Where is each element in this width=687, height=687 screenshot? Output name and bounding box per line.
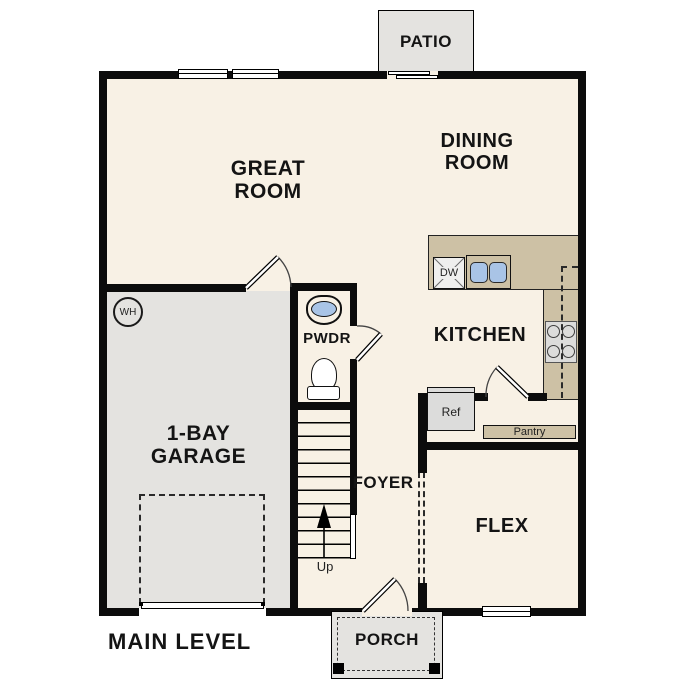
- garage-top-wall: [107, 284, 246, 292]
- porch-label: PORCH: [341, 631, 433, 649]
- garage-label: 1-BAY GARAGE: [107, 423, 290, 468]
- powder-label: PWDR: [296, 331, 358, 347]
- stairs-up-label: Up: [305, 559, 345, 574]
- kitchen-south-wall-right-stub: [528, 393, 547, 401]
- flex-label: FLEX: [450, 516, 554, 538]
- sink-basin-right: [489, 262, 507, 283]
- garage-door-track: [139, 494, 265, 604]
- patio-label: PATIO: [378, 33, 474, 51]
- powder-bottom-wall: [298, 402, 350, 410]
- pantry-shelf: Pantry: [483, 425, 576, 439]
- foyer-flex-opening: [418, 472, 420, 583]
- ref-alcove-wall: [418, 393, 427, 449]
- dishwasher-label: DW: [439, 267, 459, 279]
- front-door-opening: [362, 608, 412, 616]
- foyer-label: FOYER: [350, 474, 416, 492]
- kitchen-south-wall-left-stub: [475, 393, 488, 401]
- foyer-flex-wall-lower-stub: [418, 583, 427, 608]
- great-room-window-left: [178, 69, 228, 79]
- garage-door-panel: [141, 602, 264, 609]
- cabinet-dashed-line: [561, 266, 578, 268]
- powder-right-wall-upper: [350, 283, 357, 326]
- refrigerator-door-line: [428, 392, 474, 393]
- foyer-flex-wall-upper-stub: [418, 449, 427, 473]
- toilet-tank: [307, 386, 340, 400]
- plan-title: MAIN LEVEL: [108, 629, 251, 655]
- patio-slider-door: [396, 75, 438, 79]
- sink-basin-left: [470, 262, 488, 283]
- foyer-flex-opening: [423, 472, 425, 583]
- pantry-label: Pantry: [514, 426, 546, 438]
- water-heater: WH: [113, 297, 143, 327]
- dishwasher: DW: [433, 257, 465, 289]
- kitchen-label: KITCHEN: [424, 325, 536, 347]
- dining-room-label: DINING ROOM: [417, 131, 537, 174]
- great-room-window-right: [232, 69, 279, 79]
- flex-top-wall: [418, 442, 578, 450]
- refrigerator-label: Ref: [442, 405, 461, 419]
- stair-railing: [350, 514, 356, 559]
- garage-door-opening: [139, 608, 266, 616]
- stove-burner: [547, 345, 560, 358]
- stove-burner: [547, 325, 560, 338]
- floor-plan: PATIO WH 1-BAY GARAGE PWDR Up FOYER DW: [0, 0, 687, 687]
- powder-top-wall: [290, 283, 357, 291]
- porch-post-left: [333, 663, 344, 674]
- stove-burner: [562, 325, 575, 338]
- water-heater-label: WH: [120, 307, 137, 318]
- powder-sink-basin: [311, 301, 337, 317]
- stove-burner: [562, 345, 575, 358]
- great-room-label: GREAT ROOM: [208, 158, 328, 203]
- cabinet-dashed-line: [561, 266, 563, 398]
- flex-window: [482, 606, 531, 617]
- refrigerator: Ref: [427, 387, 475, 431]
- porch-post-right: [429, 663, 440, 674]
- staircase: [298, 410, 350, 559]
